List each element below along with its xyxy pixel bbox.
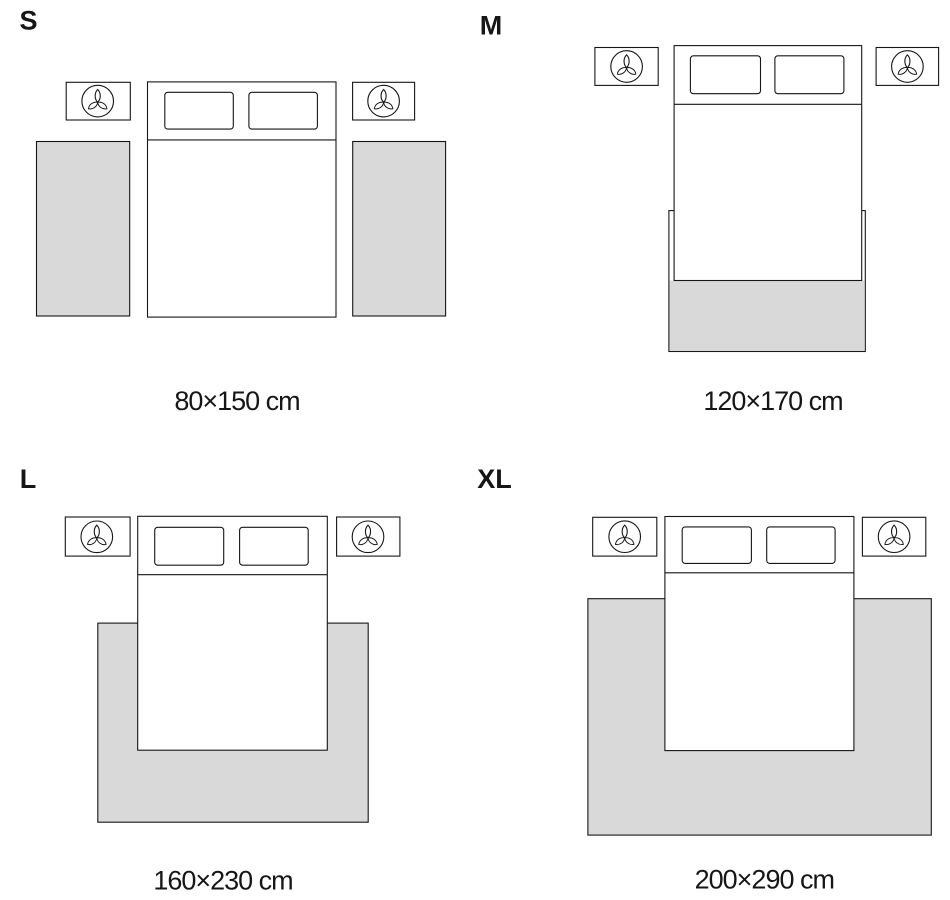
svg-text:M: M (480, 11, 503, 41)
svg-text:S: S (20, 6, 38, 36)
svg-text:L: L (20, 464, 37, 494)
svg-text:120×170 cm: 120×170 cm (703, 386, 842, 416)
svg-text:XL: XL (477, 464, 512, 494)
svg-text:200×290 cm: 200×290 cm (695, 865, 834, 895)
svg-text:160×230 cm: 160×230 cm (153, 866, 292, 896)
svg-text:80×150 cm: 80×150 cm (174, 386, 299, 416)
